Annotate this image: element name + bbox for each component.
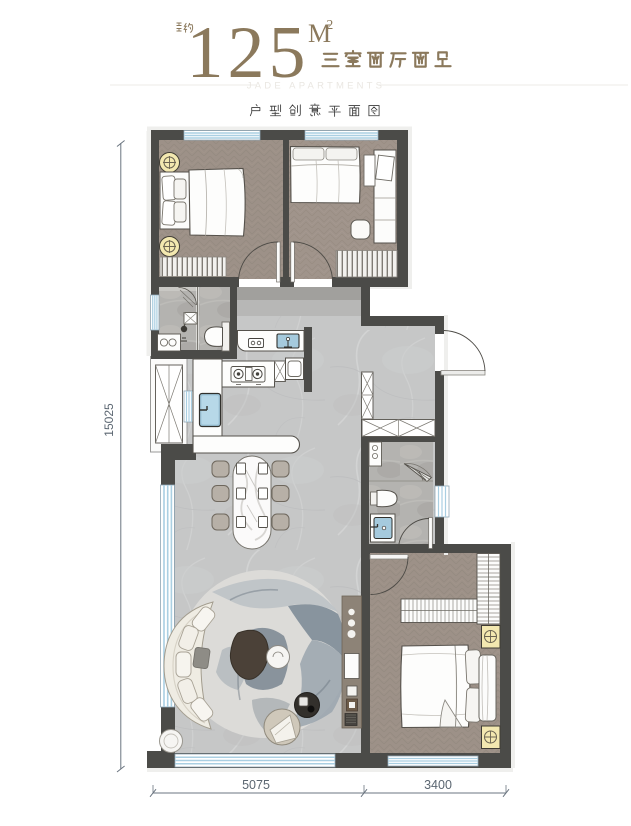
svg-text:15025: 15025 xyxy=(102,403,116,437)
svg-text:5075: 5075 xyxy=(242,778,270,792)
svg-text:3400: 3400 xyxy=(424,778,452,792)
svg-text:JADE APARTMENTS: JADE APARTMENTS xyxy=(247,81,385,92)
svg-text:2: 2 xyxy=(327,17,334,32)
